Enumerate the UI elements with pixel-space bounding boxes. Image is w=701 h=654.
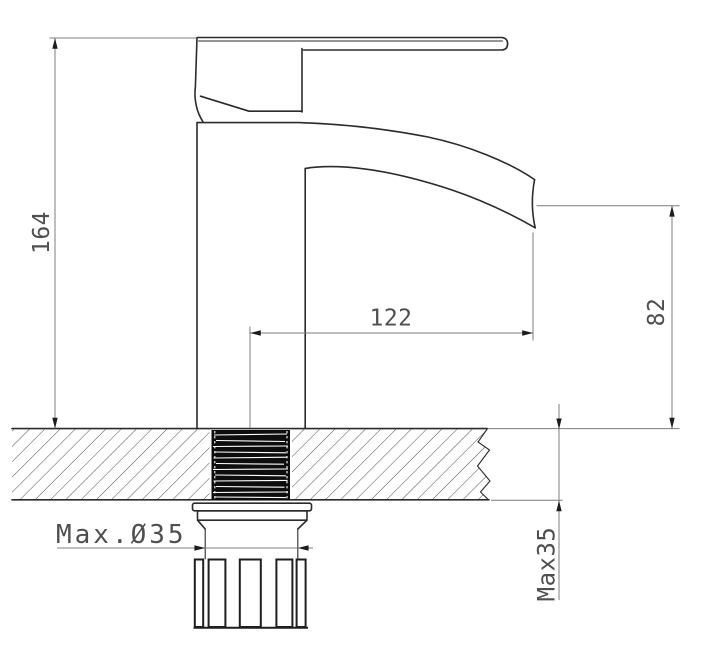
dimension-label-deck-thickness: Max35	[533, 527, 561, 602]
countertop-hatch-left	[12, 429, 210, 499]
mounting-hardware	[193, 503, 312, 628]
arrowhead-down	[556, 419, 561, 430]
nut-rib	[195, 560, 203, 628]
collar-taper-right	[298, 520, 307, 529]
dimension-label-outlet-height: 82	[644, 298, 670, 327]
nut-rib	[276, 560, 292, 628]
spout-inner-curve	[306, 167, 536, 228]
dimension-label-overall-height: 164	[29, 211, 55, 254]
arrowhead-up	[52, 38, 57, 49]
faucet-outline	[195, 38, 535, 429]
faucet-installation-drawing: 164 122 82 Max35 Max.Ø35	[0, 0, 701, 654]
nut-rib	[209, 560, 226, 628]
collar-taper-left	[198, 520, 206, 529]
threaded-shank	[212, 430, 291, 500]
arrowhead-up	[556, 501, 561, 512]
lever-bar-outline	[197, 38, 508, 51]
spout-outer-curve	[197, 123, 534, 180]
mounting-collar-band	[198, 511, 308, 520]
arrowhead-right	[522, 330, 533, 335]
dimension-label-hole-diameter: Max.Ø35	[56, 520, 187, 550]
countertop-hatch-right	[292, 429, 490, 499]
dimension-spout-reach: 122	[250, 233, 533, 428]
dimension-overall-height: 164	[29, 38, 196, 429]
arrowhead-right	[194, 545, 205, 550]
nut-rib	[240, 560, 261, 628]
body-column	[197, 123, 305, 429]
mounting-washer-plate	[193, 503, 312, 511]
lever-handle	[195, 38, 508, 122]
dimension-label-spout-reach: 122	[369, 306, 412, 332]
handle-bottom-edge	[201, 96, 303, 111]
spout	[197, 123, 535, 228]
arrowhead-up	[669, 206, 674, 217]
dimension-hole-diameter: Max.Ø35	[56, 520, 313, 551]
technical-drawing-page: 164 122 82 Max35 Max.Ø35	[0, 0, 701, 654]
arrowhead-left	[298, 545, 309, 550]
ribbed-lock-nut	[194, 560, 309, 628]
arrowhead-down	[669, 418, 674, 429]
arrowhead-down	[52, 418, 57, 429]
nut-rib	[297, 560, 306, 628]
handle-left-edge	[195, 38, 203, 122]
arrowhead-left	[250, 330, 261, 335]
dimension-deck-thickness: Max35	[491, 404, 563, 601]
dimension-outlet-height: 82	[488, 206, 680, 429]
spout-tip-face	[532, 180, 535, 228]
